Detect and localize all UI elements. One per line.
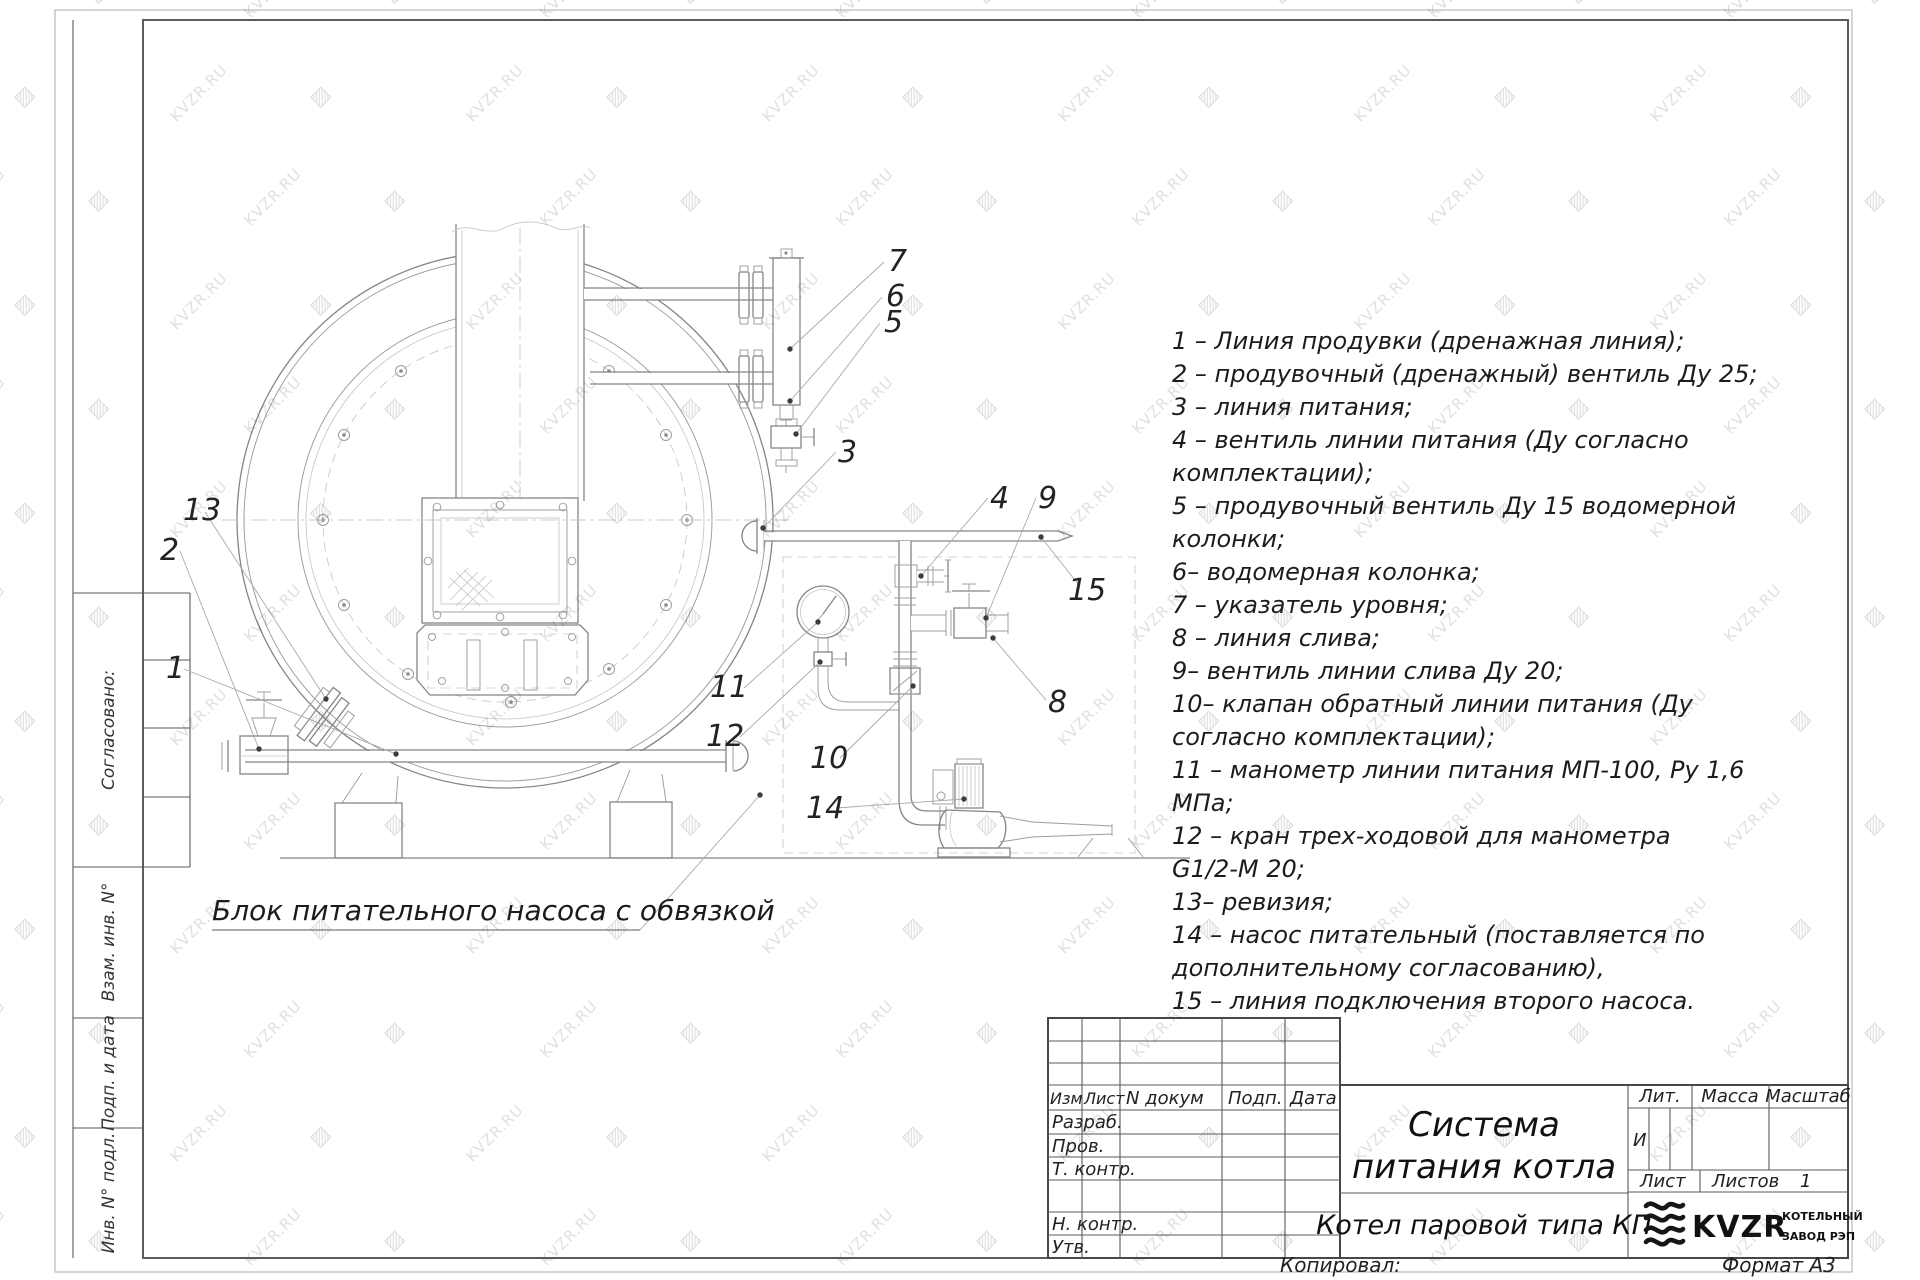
row-tkontr: Т. контр. <box>1052 1159 1136 1180</box>
sheets-value: 1 <box>1800 1171 1811 1192</box>
column-flanges <box>739 266 763 408</box>
legend-line: 6– водомерная колонка; <box>1172 558 1480 586</box>
legend-line: МПа; <box>1172 789 1234 817</box>
caption-text: Блок питательного насоса с обвязкой <box>212 894 775 927</box>
callout-9: 9 <box>1038 481 1057 516</box>
doc-title-line2: питания котла <box>1352 1147 1616 1187</box>
legend-line: 14 – насос питательный (поставляется по <box>1172 921 1705 949</box>
callout-14: 14 <box>806 791 844 826</box>
mass-label: Масса <box>1701 1086 1758 1107</box>
legend: 1 – Линия продувки (дренажная линия); 2 … <box>1171 327 1758 1015</box>
drawing-page: Согласовано: Взам. инв. N° Подп. и дата … <box>0 0 1920 1280</box>
legend-line: 4 – вентиль линии питания (Ду согласно <box>1172 426 1689 454</box>
callout-8: 8 <box>1048 685 1067 720</box>
lit-value: И <box>1633 1130 1646 1151</box>
side-label-agreed: Согласовано: <box>99 670 119 790</box>
three-way-cock <box>814 652 899 710</box>
legend-line: 8 – линия слива; <box>1172 624 1380 652</box>
doc-subtitle: Котел паровой типа КП <box>1316 1210 1652 1241</box>
blowdown-line <box>222 683 748 774</box>
col-ndoc: N докум <box>1126 1088 1204 1109</box>
furnace-door <box>422 498 578 623</box>
side-label-inv-orig: Инв. N° подл. <box>99 1133 119 1254</box>
callout-11: 11 <box>710 670 748 705</box>
legend-line: 12 – кран трех-ходовой для манометра <box>1172 822 1671 850</box>
legend-line: колонки; <box>1172 525 1285 553</box>
col-podp: Подп. <box>1228 1088 1282 1109</box>
legend-line: комплектации); <box>1172 459 1373 487</box>
side-strip: Согласовано: Взам. инв. N° Подп. и дата … <box>99 670 119 1253</box>
row-razrab: Разраб. <box>1052 1112 1123 1133</box>
callout-1: 1 <box>166 651 185 686</box>
copied-by-label: Копировал: <box>1280 1253 1401 1277</box>
legend-line: 5 – продувочный вентиль Ду 15 водомерной <box>1172 492 1736 520</box>
drawing-sheet: Согласовано: Взам. инв. N° Подп. и дата … <box>0 0 1920 1280</box>
legend-line: 7 – указатель уровня; <box>1172 591 1448 619</box>
chimney <box>452 222 590 501</box>
feed-pump-block <box>742 518 1135 857</box>
legend-line: 3 – линия питания; <box>1172 393 1413 421</box>
format-label: Формат А3 <box>1722 1253 1836 1277</box>
callout-3: 3 <box>838 435 857 470</box>
side-label-replace-inv: Взам. инв. N° <box>99 883 119 1002</box>
logo-text: KVZR <box>1692 1210 1787 1245</box>
manometer <box>797 586 849 652</box>
water-gauge-column <box>584 249 814 473</box>
row-utv: Утв. <box>1052 1237 1090 1258</box>
legend-line: 9– вентиль линии слива Ду 20; <box>1172 657 1563 685</box>
legend-line: 11 – манометр линии питания МП-100, Ру 1… <box>1172 756 1744 784</box>
doc-title-line1: Система <box>1408 1105 1560 1145</box>
col-data: Дата <box>1289 1088 1337 1109</box>
company-logo: KVZR КОТЕЛЬНЫЙ ЗАВОД РЭП <box>1646 1204 1863 1245</box>
legend-line: 13– ревизия; <box>1172 888 1333 916</box>
callout-15: 15 <box>1068 573 1106 608</box>
sheets-label: Листов <box>1711 1171 1779 1192</box>
sheet-frame <box>55 10 1852 1272</box>
legend-line: 2 – продувочный (дренажный) вентиль Ду 2… <box>1172 360 1758 388</box>
callout-7: 7 <box>888 244 907 279</box>
sheet-label: Лист <box>1639 1171 1686 1192</box>
title-block: Изм Лист N докум Подп. Дата Разраб. Пров… <box>1048 1018 1863 1258</box>
legend-line: 1 – Линия продувки (дренажная линия); <box>1172 327 1684 355</box>
leader-lines <box>180 262 1078 930</box>
logo-line2: ЗАВОД РЭП <box>1782 1230 1855 1243</box>
legend-line: 15 – линия подключения второго насоса. <box>1172 987 1695 1015</box>
ash-panel <box>417 625 588 695</box>
column-blowoff-valve <box>771 405 814 473</box>
callout-2: 2 <box>160 533 179 568</box>
scale-label: Масштаб <box>1765 1086 1851 1107</box>
legend-line: G1/2-М 20; <box>1172 855 1305 883</box>
feed-pump <box>933 759 1112 857</box>
col-list: Лист <box>1083 1089 1125 1108</box>
callout-4: 4 <box>990 481 1009 516</box>
callout-5: 5 <box>884 305 903 340</box>
callout-12: 12 <box>706 719 744 754</box>
legend-line: дополнительному согласованию), <box>1171 954 1605 982</box>
lit-label: Лит. <box>1638 1086 1680 1107</box>
logo-line1: КОТЕЛЬНЫЙ <box>1782 1210 1863 1223</box>
row-prov: Пров. <box>1052 1136 1104 1157</box>
sheet-footer: Копировал: Формат А3 <box>1280 1253 1836 1277</box>
drawing-caption: Блок питательного насоса с обвязкой <box>212 894 775 930</box>
legend-line: 10– клапан обратный линии питания (Ду <box>1172 690 1694 718</box>
side-label-sign-date: Подп. и дата <box>99 1015 119 1131</box>
drain-branch-valve <box>911 584 1008 638</box>
callout-13: 13 <box>183 493 221 528</box>
callout-10: 10 <box>810 741 848 776</box>
legend-line: согласно комплектации); <box>1172 723 1495 751</box>
row-nkontr: Н. контр. <box>1052 1214 1138 1235</box>
col-izm: Изм <box>1050 1089 1083 1108</box>
